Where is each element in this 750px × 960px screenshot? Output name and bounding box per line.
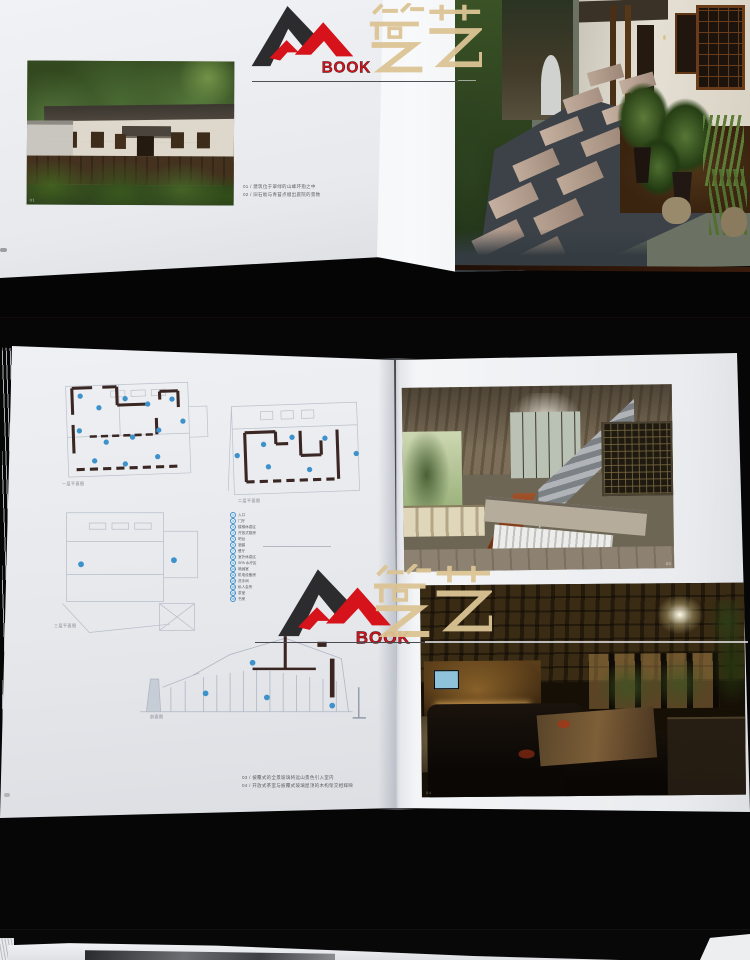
- legend-number-badge: 15: [230, 596, 236, 602]
- legend-label: 书房: [238, 597, 245, 602]
- book-logo-text: BOOK: [322, 60, 372, 76]
- book-photo-collage: 01 01 / 建筑位于翠绿的山峰环抱之中 02 / 旧石板与青苔点缀出庭院的景…: [0, 0, 750, 960]
- caption-line: 02 / 旧石板与青苔点缀出庭院的景致: [243, 191, 320, 199]
- watermark-underline-light: [425, 641, 748, 643]
- legend-label: 酒窖: [238, 543, 245, 548]
- legend-label: 私人会所: [238, 585, 252, 590]
- legend-label: 瑜伽室: [238, 567, 249, 572]
- bottom-photo-strip: [0, 930, 750, 960]
- caption-line: 01 / 建筑位于翠绿的山峰环抱之中: [243, 183, 320, 191]
- wood-window-large: [696, 5, 745, 90]
- legend-leader-line: [263, 546, 331, 547]
- photo-number: 04: [426, 790, 431, 795]
- middle-spread-photo: 一层平面图 二层平面图: [0, 318, 750, 930]
- page-number-smudge: [4, 793, 10, 797]
- mountain-logo-icon: BOOK: [250, 1, 372, 76]
- legend-label: SPA 水疗区: [238, 561, 257, 566]
- floor-plan-3: [48, 500, 208, 640]
- porch-post: [610, 5, 616, 119]
- roof: [44, 104, 234, 121]
- legend-label: 餐厅: [238, 549, 245, 554]
- page-number-smudge: [0, 248, 7, 252]
- plan-label: 剖面图: [150, 714, 164, 720]
- caption-line: 04 / 开放式茶室与披覆式玻璃屋顶的木构架交相辉映: [242, 782, 353, 790]
- eave: [579, 0, 668, 22]
- legend-label: 入口: [238, 513, 245, 518]
- caption-block: 03 / 披覆式的全景玻璃将远山景色引入室内 04 / 开放式茶室与披覆式玻璃屋…: [242, 774, 353, 790]
- caption-line: 03 / 披覆式的全景玻璃将远山景色引入室内: [242, 774, 353, 782]
- watermark-underline: [255, 642, 425, 643]
- interior-photo-dining: 03: [402, 384, 675, 572]
- entry-gable-roof: [122, 126, 170, 137]
- coffee-table: [536, 707, 656, 767]
- side-cabinet: [667, 716, 745, 795]
- plan-label: 一层平面图: [62, 481, 85, 487]
- garden-path-photo: [455, 0, 750, 273]
- book-page-edge-right: [700, 934, 750, 960]
- legend-label: 茶室: [238, 591, 245, 596]
- legend-label: 门厅: [238, 519, 245, 524]
- legend-label: 机电设备房: [238, 573, 256, 578]
- top-spread-photo: 01 01 / 建筑位于翠绿的山峰环抱之中 02 / 旧石板与青苔点缀出庭院的景…: [0, 0, 750, 318]
- floor-plan-1: [56, 375, 215, 492]
- wall-lamp: [663, 35, 666, 40]
- legend-label: 洗手间: [238, 579, 249, 584]
- plan-label: 二层平面图: [238, 498, 261, 504]
- legend-label: 开放式厨房: [238, 531, 256, 536]
- zhuyi-logo-icon: [372, 564, 492, 645]
- legend-label: 室外休息区: [238, 555, 256, 560]
- garden-rock: [721, 207, 748, 237]
- zhuyi-logo-icon: [368, 3, 482, 80]
- plan-label: 三层平面图: [54, 623, 77, 629]
- watermark: BOOK: [276, 564, 536, 664]
- watermark-underline-light: [458, 80, 476, 81]
- white-hut: [541, 55, 562, 115]
- garden-rock: [662, 197, 692, 224]
- vine-overgrowth: [27, 141, 234, 205]
- watermark-underline: [252, 81, 458, 82]
- tv-screen: [434, 670, 459, 689]
- photo-number: 03: [666, 561, 672, 566]
- caption-block: 01 / 建筑位于翠绿的山峰环抱之中 02 / 旧石板与青苔点缀出庭院的景致: [243, 183, 320, 199]
- floor-plan-2: [220, 388, 369, 511]
- photo-number: 01: [30, 197, 35, 202]
- bench-cushions: [403, 505, 484, 538]
- legend-label: 楼梯休息区: [238, 525, 256, 530]
- warm-window-wall: [589, 653, 719, 709]
- house-exterior-photo: 01: [27, 60, 235, 205]
- plant-silhouette: [702, 600, 745, 711]
- lattice-screen: [601, 421, 674, 496]
- legend-label: 吧台: [238, 537, 245, 542]
- watermark: BOOK: [250, 1, 495, 93]
